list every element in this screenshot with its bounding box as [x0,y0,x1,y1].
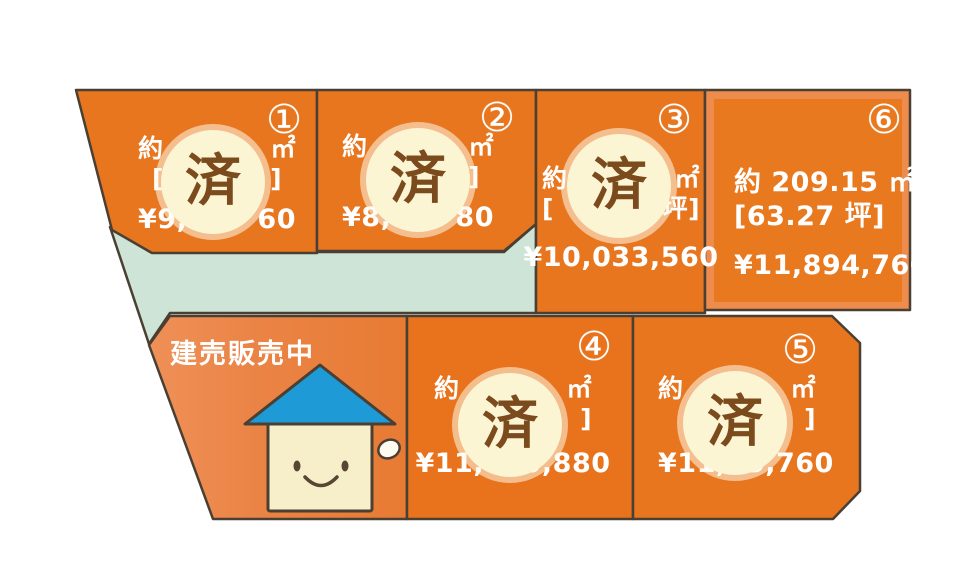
tsubo-suffix: ] [804,404,816,434]
area-prefix: 約 [138,134,164,164]
sold-label: 済 [707,395,763,451]
tsubo-suffix: ] [270,164,282,194]
plot-3-price: ¥10,033,560 [542,242,700,274]
sold-label: 済 [482,397,538,453]
plot-2-sold-badge: 済 [366,128,470,232]
plot-6-price: ¥11,894,760 [734,250,929,281]
plot-6-number: ⑥ [862,98,906,142]
mascot-eye-right [342,461,349,472]
plot-4-sold-badge: 済 [458,373,562,477]
area-suffix: ㎡ [790,374,816,404]
tsubo-suffix: ] [580,404,592,434]
area-suffix: ㎡ [468,132,494,162]
plot-6-tsubo: [63.27 坪] [734,200,929,234]
sold-label: 済 [185,154,241,210]
plot-4-number: ④ [572,325,616,369]
area-prefix: 約 [342,132,368,162]
house-body [268,423,372,511]
land-plot-map: ① ② ③ ⑥ ④ ⑤ 約 ㎡ [ ] ¥9,2 60 約 ㎡ ] ¥8,99 … [0,0,960,578]
plot-3-sold-badge: 済 [567,134,671,238]
area-suffix: ㎡ [566,374,592,404]
mascot-eye-left [294,461,301,472]
price-suffix: 60 [257,204,296,236]
tsubo-prefix: [ [542,194,554,224]
sale-banner: 建売販売中 [170,332,315,371]
area-suffix: ㎡ [674,164,700,194]
plot-6-area: 約 209.15 ㎡ [734,166,929,200]
area-prefix: 約 [434,374,460,404]
area-suffix: ㎡ [270,134,296,164]
plot-map-canvas [0,0,960,578]
sold-label: 済 [591,158,647,214]
plot-6-info: 約 209.15 ㎡ [63.27 坪] ¥11,894,760 [734,166,929,281]
plot-5-number: ⑤ [778,328,822,372]
sold-label: 済 [390,152,446,208]
area-prefix: 約 [658,374,684,404]
plot-1-sold-badge: 済 [161,130,265,234]
plot-5-sold-badge: 済 [683,371,787,475]
area-prefix: 約 [542,164,568,194]
plot-3-number: ③ [652,98,696,142]
price: ¥10,033,560 [523,242,718,274]
